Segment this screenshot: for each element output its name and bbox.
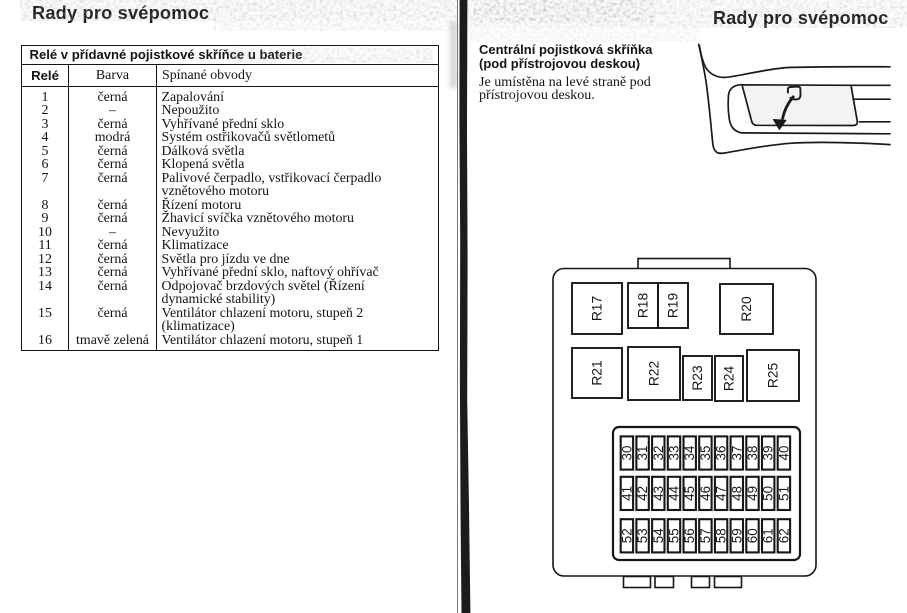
- svg-text:49: 49: [745, 486, 760, 501]
- svg-text:34: 34: [682, 445, 697, 460]
- svg-text:37: 37: [729, 446, 744, 461]
- svg-text:45: 45: [682, 486, 697, 501]
- svg-text:38: 38: [745, 446, 760, 461]
- svg-text:R22: R22: [647, 361, 662, 386]
- svg-text:54: 54: [651, 528, 666, 543]
- svg-text:60: 60: [745, 528, 760, 543]
- svg-text:51: 51: [776, 486, 791, 501]
- svg-text:59: 59: [729, 528, 744, 543]
- svg-text:R21: R21: [590, 360, 605, 385]
- svg-text:46: 46: [698, 486, 713, 501]
- svg-text:55: 55: [667, 528, 682, 543]
- svg-text:32: 32: [651, 446, 666, 461]
- svg-text:61: 61: [761, 528, 776, 543]
- svg-text:62: 62: [776, 528, 791, 543]
- svg-text:39: 39: [761, 446, 776, 461]
- svg-text:33: 33: [667, 446, 682, 461]
- svg-text:44: 44: [667, 485, 682, 500]
- svg-text:R18: R18: [636, 293, 651, 319]
- svg-text:R17: R17: [590, 296, 605, 321]
- svg-text:R23: R23: [690, 365, 705, 391]
- svg-text:R25: R25: [766, 363, 781, 389]
- svg-text:53: 53: [635, 528, 650, 543]
- svg-text:42: 42: [635, 486, 650, 501]
- svg-text:R24: R24: [722, 366, 737, 392]
- svg-text:R19: R19: [666, 293, 681, 319]
- svg-text:48: 48: [729, 486, 744, 501]
- svg-text:31: 31: [635, 446, 650, 461]
- svg-text:58: 58: [714, 528, 729, 543]
- svg-text:30: 30: [619, 446, 634, 461]
- svg-text:50: 50: [761, 486, 776, 501]
- svg-text:47: 47: [714, 486, 729, 501]
- svg-text:R20: R20: [739, 296, 754, 322]
- svg-text:57: 57: [698, 528, 713, 543]
- svg-text:36: 36: [714, 446, 729, 461]
- svg-text:41: 41: [619, 486, 634, 501]
- svg-text:43: 43: [651, 486, 666, 501]
- svg-text:35: 35: [698, 446, 713, 461]
- svg-text:52: 52: [619, 528, 634, 543]
- svg-text:56: 56: [682, 528, 697, 543]
- svg-text:40: 40: [776, 446, 791, 461]
